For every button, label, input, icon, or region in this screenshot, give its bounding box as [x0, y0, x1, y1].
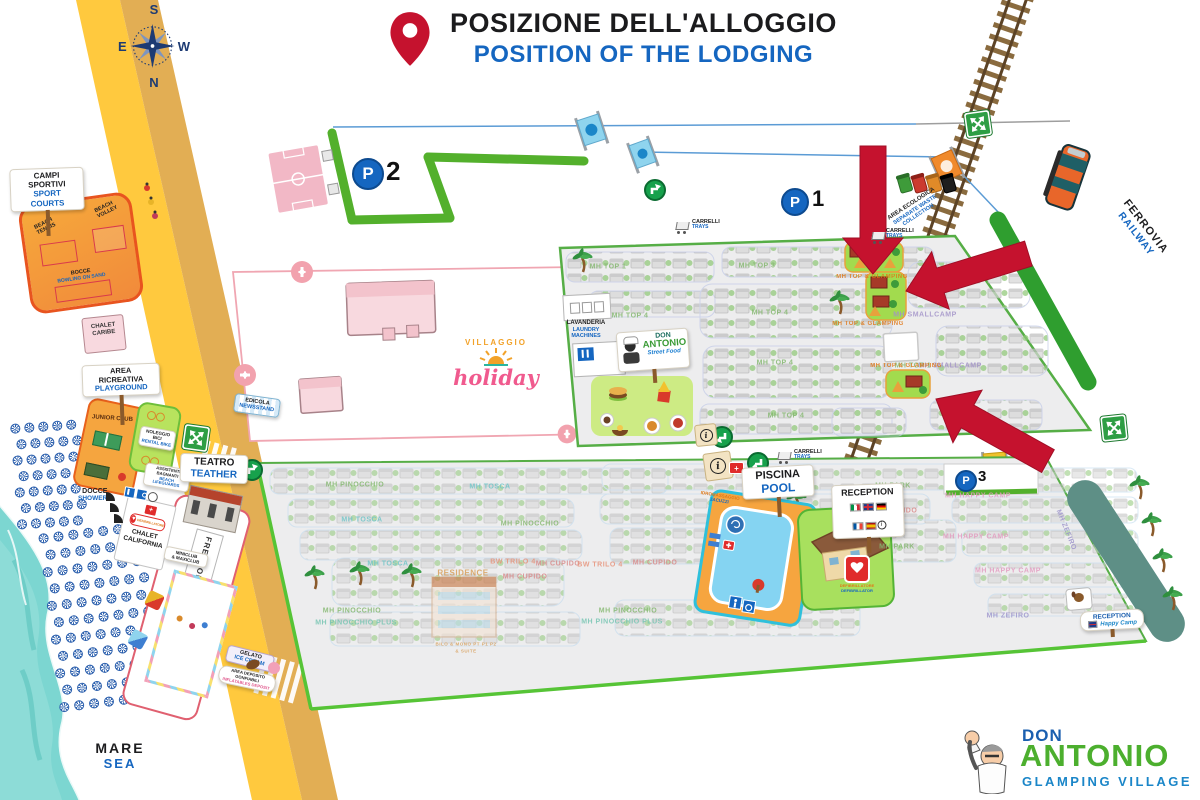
exit-sign-north — [963, 109, 992, 138]
compass-s: S — [118, 2, 190, 17]
trolleys-label: CARRELLI TRAYS — [692, 219, 720, 231]
page-subtitle: POSITION OF THE LODGING — [450, 41, 837, 69]
compass: S E W N — [118, 2, 190, 106]
teatro-sign: TEATROTEATHER — [180, 453, 249, 484]
compass-rose-icon — [129, 17, 176, 75]
reception-sign: RECEPTION i — [831, 483, 905, 540]
volley-court — [92, 225, 127, 253]
info-icon: i — [877, 520, 886, 529]
glamping-spot-3 — [886, 370, 930, 398]
mascot-icon — [962, 726, 1024, 794]
trolleys-station — [778, 452, 791, 460]
info-board: i — [694, 423, 718, 447]
pool-area — [694, 490, 818, 627]
chalet-caribe-building: CHALET CARIBE — [81, 314, 127, 354]
kid-figure — [176, 615, 183, 622]
chef-icon — [620, 336, 642, 365]
street-food-court — [591, 376, 693, 436]
flamingo-float-icon — [268, 662, 280, 674]
shower-icons — [106, 492, 123, 523]
mascot-sign — [1065, 587, 1093, 611]
restroom-icon — [123, 486, 136, 499]
beach-volley-label: BEACH VOLLEY — [94, 198, 121, 219]
street-food-sign: DON ANTONIO Street Food — [616, 328, 691, 373]
glamping-spot-2 — [866, 272, 906, 320]
parking-p3-number: 3 — [978, 468, 986, 485]
laundry-building — [562, 293, 611, 321]
location-pin-icon — [388, 8, 432, 70]
parking-p3-icon: P — [955, 470, 977, 492]
kid-figure — [188, 622, 195, 629]
page-title: POSIZIONE DELL'ALLOGGIO — [450, 8, 837, 39]
kid-figure — [201, 622, 208, 629]
logo-antonio: ANTONIO — [1020, 738, 1169, 774]
sun-icon — [476, 348, 516, 366]
holiday-building-small — [299, 377, 343, 414]
flag-germany — [875, 502, 886, 510]
flag-uk — [862, 503, 873, 511]
trolleys-label: CARRELLI TRAYS — [886, 228, 914, 240]
flag-italy — [849, 503, 860, 511]
tennis-court — [39, 240, 78, 267]
reception-happycamp-sign: RECEPTION Happy Camp — [1080, 608, 1145, 632]
junior-club-label: JUNIOR CLUB — [92, 414, 133, 423]
flag-spain — [865, 521, 876, 529]
chalet-caribe-label: CHALET CARIBE — [83, 321, 124, 339]
villaggio-holiday-logo: VILLAGGIO holiday — [450, 338, 542, 390]
train — [1041, 142, 1091, 211]
bike-rental-sign: NOLEGGIO BICIRENTAL BIKE — [138, 425, 177, 450]
sport-courts-sign: CAMPI SPORTIVISPORT COURTS — [9, 167, 84, 212]
trolleys-station — [872, 232, 885, 240]
pool-sign: PISCINA POOL — [741, 464, 815, 500]
sea-water — [0, 505, 80, 800]
resort-map: POSIZIONE DELL'ALLOGGIO POSITION OF THE … — [0, 0, 1200, 800]
trolleys-label: CARRELLI TRAYS — [794, 449, 822, 461]
parking-p2-number: 2 — [386, 156, 400, 187]
foosball-table — [84, 462, 110, 480]
paddle-icon — [117, 472, 126, 481]
playground-sign: AREA RICREATIVAPLAYGROUND — [81, 363, 160, 398]
laundry-label: LAVANDERIA LAUNDRY MACHINES — [558, 320, 614, 339]
brand-logo: DON ANTONIO GLAMPING VILLAGE — [962, 724, 1194, 796]
header: POSIZIONE DELL'ALLOGGIO POSITION OF THE … — [388, 8, 837, 70]
parking-p1-icon: P — [781, 188, 809, 216]
bike-icon — [155, 412, 165, 422]
soccer-field — [267, 142, 341, 214]
holiday-building-large — [346, 280, 436, 341]
residence-building — [432, 577, 496, 637]
exit-sign-west — [181, 423, 210, 452]
logo-tagline: GLAMPING VILLAGE — [1022, 774, 1192, 789]
upper-service-building — [883, 332, 918, 362]
sea-label: MARE SEA — [82, 740, 158, 771]
villaggio-label: VILLAGGIO — [450, 338, 542, 347]
direction-arrow-1 — [645, 180, 665, 200]
flag-france — [852, 522, 863, 530]
parking-p2-icon: P — [352, 158, 384, 190]
compass-w: W — [178, 39, 190, 54]
restroom-icon — [576, 346, 595, 362]
parking-p1-number: 1 — [812, 186, 824, 212]
compass-n: N — [118, 75, 190, 90]
flag-uk — [1088, 621, 1097, 628]
holiday-label: holiday — [450, 365, 542, 390]
accessible-icon — [135, 488, 148, 501]
compass-e: E — [118, 39, 127, 54]
trolleys-station — [676, 222, 689, 230]
exit-sign-east — [1100, 414, 1129, 443]
defibrillator-label: DEFIBRILLATORE DEFIBRILLATOR — [834, 584, 880, 593]
